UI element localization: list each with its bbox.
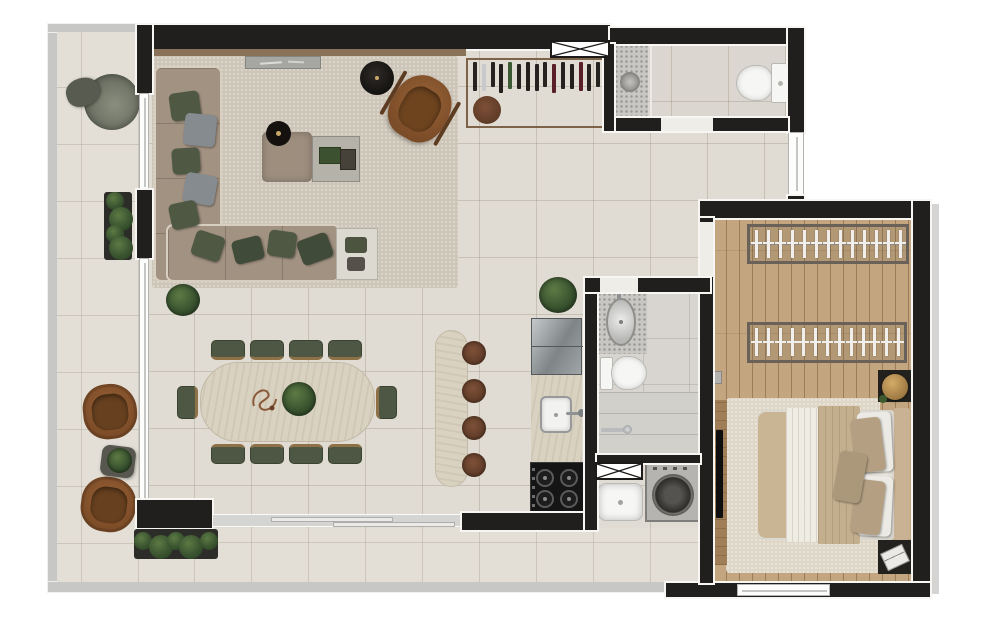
wine-bottle — [552, 64, 556, 93]
wall-bathroom2-left — [585, 285, 597, 530]
bathroom2-door-opening — [600, 278, 638, 292]
fridge-door-split — [532, 346, 583, 347]
wine-bottle — [535, 64, 539, 91]
hanger-crossbar — [799, 242, 810, 244]
closet-rail — [747, 224, 909, 264]
cooktop-burner — [536, 490, 554, 508]
wine-bottle — [473, 62, 477, 91]
pouf-seat — [89, 485, 130, 526]
shower2-valve — [601, 428, 625, 432]
bed-headboard — [893, 408, 910, 540]
sliding-door-leaf — [333, 522, 455, 527]
hanger-crossbar — [835, 242, 846, 244]
washer-controls — [653, 467, 693, 470]
wine-bottle — [596, 62, 600, 87]
clothes-hanger — [767, 230, 770, 258]
wine-bottle — [499, 64, 503, 93]
burner-center — [567, 497, 571, 501]
wine-bottle — [543, 62, 547, 87]
hedge-plant — [109, 236, 133, 260]
clothes-hanger — [839, 230, 842, 258]
wall-top-living — [137, 25, 610, 49]
clothes-hanger — [803, 230, 806, 258]
island-stool — [462, 453, 486, 477]
window-mullion — [742, 590, 827, 592]
wall-bathroom1-right — [788, 28, 804, 132]
faucet-2 — [617, 292, 621, 300]
burner-center — [543, 476, 547, 480]
shelf-decor — [260, 61, 282, 65]
clothes-hanger — [862, 328, 865, 357]
hanger-crossbar — [787, 341, 798, 343]
book-stack — [319, 147, 341, 164]
hanger-crossbar — [859, 242, 870, 244]
hanger-crossbar — [895, 242, 906, 244]
clothes-hanger — [815, 230, 818, 258]
floor-plan — [0, 0, 986, 635]
shower2-knob — [623, 425, 632, 434]
left-glass-wall-lower — [139, 258, 149, 502]
tray-handle — [276, 131, 281, 136]
hanger-crossbar — [823, 242, 834, 244]
wine-bottle — [587, 64, 591, 91]
laundry-door-marker — [595, 462, 643, 480]
bed-duvet-fold — [758, 412, 788, 538]
terrace-floor-bottom — [144, 528, 700, 582]
kitchen-faucet-base — [578, 409, 585, 417]
bedroom-door-opening — [700, 222, 713, 277]
dining-chair — [328, 340, 362, 360]
clothes-hanger — [885, 328, 888, 357]
side-table-books — [312, 136, 360, 182]
clothes-hanger — [826, 328, 829, 357]
terrace-table-plant — [107, 448, 132, 473]
sink-drain — [619, 320, 623, 324]
hanger-crossbar — [751, 341, 762, 343]
toilet1-tank — [771, 63, 787, 103]
clothes-hanger — [779, 230, 782, 258]
speaker-turntable — [360, 61, 394, 95]
bathroom1-door-opening — [661, 118, 713, 131]
hall-east-window — [788, 132, 804, 196]
wall-bedroom-top — [700, 201, 930, 218]
decor-object — [345, 237, 367, 253]
wine-bottle — [526, 62, 530, 91]
shower1-drain — [620, 72, 640, 92]
wine-bottle — [570, 64, 574, 89]
cooktop-burner — [560, 469, 578, 487]
clothes-hanger — [899, 230, 902, 258]
wine-bottle — [517, 64, 521, 89]
burner-center — [543, 497, 547, 501]
hanger-crossbar — [846, 341, 857, 343]
plant-ball — [166, 284, 200, 316]
side-table-end — [336, 228, 378, 280]
hanger-crossbar — [798, 341, 809, 343]
hanger-crossbar — [811, 242, 822, 244]
dining-chair — [289, 444, 323, 464]
island-stool — [462, 341, 486, 365]
laundry-tub — [598, 483, 643, 521]
window-mullion — [796, 137, 798, 191]
sofa-pillow — [171, 147, 201, 175]
shower2-floor — [597, 392, 700, 455]
island-stool — [462, 379, 486, 403]
tub-drain — [618, 500, 623, 505]
shower1-glass — [650, 44, 652, 118]
table-centerpiece-plant — [282, 382, 316, 416]
refrigerator — [531, 318, 582, 375]
decor-object — [347, 257, 365, 271]
island-stool — [462, 416, 486, 440]
clothes-hanger — [767, 328, 770, 357]
wall-kitchen-bottom — [462, 513, 595, 530]
clothes-hanger — [791, 230, 794, 258]
wall-bedroom-right — [913, 201, 930, 597]
dining-chair — [211, 444, 245, 464]
vanity-sink-2 — [606, 298, 636, 346]
wine-bottle — [508, 62, 512, 89]
wine-bottle — [491, 62, 495, 87]
sliding-door-track — [212, 514, 462, 527]
clothes-hanger — [779, 328, 782, 357]
wall-bottomleft-chunk — [137, 500, 212, 528]
hanger-crossbar — [787, 242, 798, 244]
wood-trim-top — [146, 49, 466, 56]
sink-drain — [554, 413, 558, 417]
window-mullion — [144, 263, 146, 499]
wall-top-bathroom1 — [610, 28, 790, 44]
dining-chair — [250, 444, 284, 464]
toilet2-bowl — [611, 356, 647, 390]
wall-left-segment1 — [137, 25, 152, 93]
cooktop-burner — [536, 469, 554, 487]
wine-bottle — [482, 64, 486, 91]
planter-trough — [104, 192, 132, 260]
dining-chair — [376, 386, 397, 419]
burner-center — [567, 476, 571, 480]
clothes-hanger — [814, 328, 817, 357]
hanger-crossbar — [883, 242, 894, 244]
speaker-center — [375, 76, 379, 80]
washing-machine — [645, 462, 701, 522]
wine-bottle — [579, 62, 583, 91]
clothes-hanger — [863, 230, 866, 258]
clothes-hanger — [802, 328, 805, 357]
terrace-railing-bottom — [48, 582, 668, 592]
dining-chair — [250, 340, 284, 360]
wall-tv — [716, 430, 723, 518]
bed-sheet — [786, 408, 820, 542]
clothes-hanger — [838, 328, 841, 357]
terrace-railing-top — [48, 24, 141, 32]
washer-lid — [652, 474, 694, 516]
hedge-plant — [200, 532, 218, 550]
clothes-hanger — [897, 328, 900, 357]
clothes-hanger — [887, 230, 890, 258]
sofa-pillow — [266, 229, 297, 259]
wall-left-segment2 — [137, 190, 152, 258]
hanger-crossbar — [822, 341, 833, 343]
hanger-crossbar — [775, 341, 786, 343]
hanger-crossbar — [881, 341, 892, 343]
clothes-hanger — [755, 230, 758, 258]
shelf-decor — [288, 61, 304, 64]
nightstand-plant — [879, 395, 887, 403]
dining-chair — [328, 444, 362, 464]
hanger-crossbar — [869, 341, 880, 343]
wine-bottle — [561, 62, 565, 89]
cooktop-knobs — [532, 468, 535, 508]
flush-button — [778, 81, 783, 86]
entry-door-marker — [550, 40, 610, 58]
hanger-crossbar — [871, 242, 882, 244]
left-glass-wall-upper — [139, 93, 149, 190]
clothes-hanger — [827, 230, 830, 258]
facade-strip-right — [932, 204, 939, 594]
sofa-pillow — [182, 112, 217, 147]
table-decor-squiggle — [248, 384, 282, 414]
serving-tray — [266, 121, 291, 146]
plant-ball — [539, 277, 577, 313]
hanger-crossbar — [834, 341, 845, 343]
hanger-crossbar — [751, 242, 762, 244]
hanger-crossbar — [810, 341, 821, 343]
bedroom-window — [737, 584, 830, 596]
window-mullion — [144, 98, 146, 187]
hanger-crossbar — [893, 341, 904, 343]
toilet1-bowl — [736, 65, 774, 101]
clothes-hanger — [875, 230, 878, 258]
cooktop-burner — [560, 490, 578, 508]
hanger-crossbar — [763, 242, 774, 244]
dining-chair — [177, 386, 198, 419]
clothes-hanger — [791, 328, 794, 357]
pouf-seat — [90, 392, 130, 432]
hanger-crossbar — [775, 242, 786, 244]
dining-chair — [211, 340, 245, 360]
clothes-hanger — [755, 328, 758, 357]
bar-stool-round — [473, 96, 501, 124]
hanger-crossbar — [858, 341, 869, 343]
terrace-railing-left — [48, 24, 57, 590]
hanger-crossbar — [847, 242, 858, 244]
clothes-hanger — [851, 230, 854, 258]
dining-chair — [289, 340, 323, 360]
clothes-hanger — [873, 328, 876, 357]
book-stack — [340, 149, 356, 170]
media-shelf — [245, 56, 321, 69]
closet-rail — [747, 322, 907, 363]
hanger-crossbar — [763, 341, 774, 343]
clothes-hanger — [850, 328, 853, 357]
planter-trough — [134, 529, 218, 559]
